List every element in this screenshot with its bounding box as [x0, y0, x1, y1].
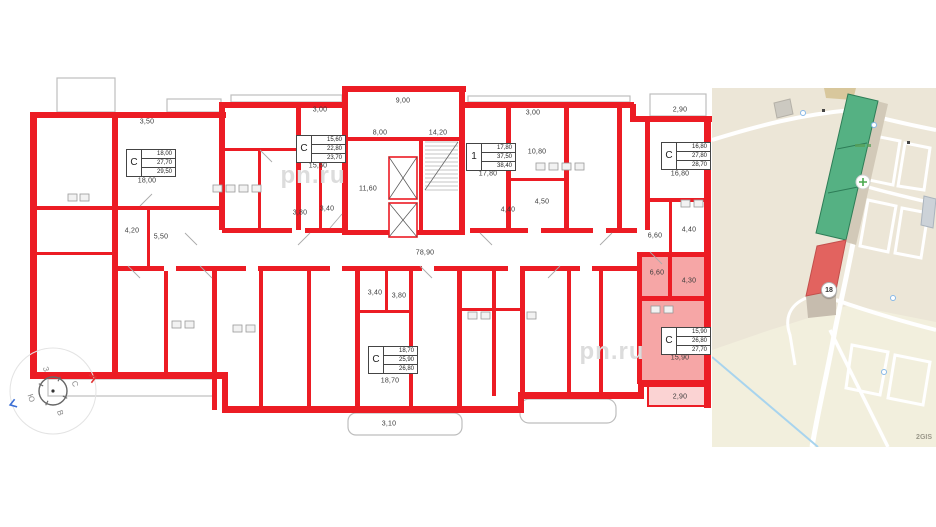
room-area-label: 3,40 [320, 206, 334, 213]
compass: С В Ю З [8, 346, 98, 436]
staircase [425, 142, 458, 190]
room-area-label: 5,50 [154, 234, 168, 241]
room-area-label: 9,00 [396, 98, 410, 105]
unit-area-value: 22,80 [312, 145, 345, 154]
elevator-shafts [389, 157, 417, 237]
room-area-label: 3,80 [293, 210, 307, 217]
room-area-label: 3,10 [382, 421, 396, 428]
unit-area-value: 23,70 [312, 154, 345, 162]
unit-type-label: С [127, 150, 142, 176]
unit-info-box-selected: С 15,9026,8027,70 [661, 327, 711, 355]
unit-info-box: С 16,8027,8028,70 [661, 142, 711, 170]
room-area-label: 2,90 [673, 107, 687, 114]
unit-area-value: 16,80 [677, 143, 710, 152]
watermark: pn.ru [281, 162, 346, 190]
map-marker-18: 18 [821, 282, 837, 298]
unit-area-value: 26,80 [384, 365, 417, 373]
unit-info-box: С 15,6022,8023,70 [296, 135, 346, 163]
unit-type-label: С [297, 136, 312, 162]
site-map-drawing [712, 88, 936, 447]
room-area-label: 6,60 [648, 233, 662, 240]
unit-type-label: 1 [467, 144, 482, 170]
unit-type-label: С [662, 328, 677, 354]
room-area-label: 4,30 [682, 278, 696, 285]
unit-area-value: 28,70 [677, 161, 710, 169]
unit-area-value: 27,70 [677, 346, 710, 354]
unit-info-box: С 18,0027,7029,50 [126, 149, 176, 177]
unit-area-value: 17,80 [482, 144, 515, 153]
unit-area-value: 27,80 [677, 152, 710, 161]
room-area-label: 4,20 [125, 228, 139, 235]
room-area-label: 14,20 [429, 130, 448, 137]
unit-info-box: С 18,7025,9026,80 [368, 346, 418, 374]
room-area-label: 8,00 [373, 130, 387, 137]
map-street-label [855, 144, 871, 147]
unit-area-value: 15,60 [312, 136, 345, 145]
compass-west-label: З [41, 365, 51, 373]
watermark: pn.ru [580, 338, 645, 366]
unit-type-label: С [369, 347, 384, 373]
room-area-label: 2,90 [673, 394, 687, 401]
room-area-label: 3,80 [392, 293, 406, 300]
room-area-label: 17,80 [479, 171, 498, 178]
compass-south-label: Ю [26, 393, 37, 403]
room-area-label: 18,70 [381, 378, 400, 385]
corridor-area-label: 78,90 [416, 250, 435, 257]
unit-area-value: 25,90 [384, 356, 417, 365]
room-area-label: 3,40 [368, 290, 382, 297]
floorplan-page: С 18,0027,7029,50 С 15,6022,8023,70 1 17… [0, 0, 936, 527]
unit-area-value: 26,80 [677, 337, 710, 346]
room-area-label: 4,40 [501, 207, 515, 214]
site-map: 18 2GIS [712, 88, 936, 447]
room-area-label: 3,00 [313, 107, 327, 114]
unit-info-box: 1 17,8037,5038,40 [466, 143, 516, 171]
unit-area-value: 37,50 [482, 153, 515, 162]
unit-area-value: 18,00 [142, 150, 175, 159]
unit-area-value: 27,70 [142, 159, 175, 168]
room-area-label: 16,80 [671, 171, 690, 178]
compass-east-label: В [55, 409, 65, 417]
room-area-label: 18,00 [138, 178, 157, 185]
room-area-label: 11,60 [359, 186, 377, 193]
map-plus-marker [856, 175, 870, 189]
room-area-label: 4,40 [682, 227, 696, 234]
room-area-label: 4,50 [535, 199, 549, 206]
unit-area-value: 29,50 [142, 168, 175, 176]
unit-area-value: 15,90 [677, 328, 710, 337]
unit-type-label: С [662, 143, 677, 169]
room-area-label: 10,80 [528, 149, 547, 156]
unit-area-value: 38,40 [482, 162, 515, 170]
compass-north-label: С [70, 380, 80, 388]
map-attribution: 2GIS [916, 434, 932, 441]
room-area-label: 3,00 [526, 110, 540, 117]
room-area-label: 6,60 [650, 270, 664, 277]
room-area-label: 15,90 [671, 355, 690, 362]
room-area-label: 3,50 [140, 119, 154, 126]
unit-area-value: 18,70 [384, 347, 417, 356]
